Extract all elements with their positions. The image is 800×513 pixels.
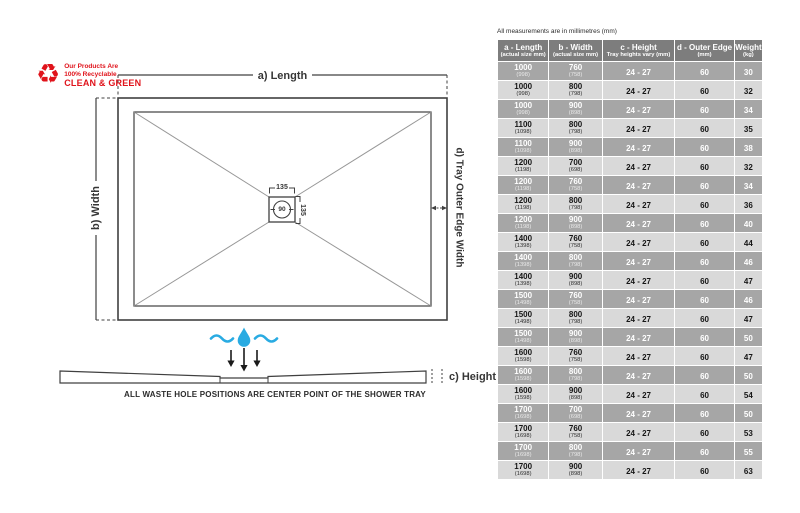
table-row: 1500(1498) 800(798) 24 - 27 60 47 bbox=[498, 309, 762, 327]
table-row: 1700(1698) 700(698) 24 - 27 60 50 bbox=[498, 404, 762, 422]
cell-height: 24 - 27 bbox=[603, 81, 675, 99]
height-dimension-label: c) Height bbox=[449, 371, 496, 383]
table-row: 1000(998) 900(898) 24 - 27 60 34 bbox=[498, 100, 762, 118]
cell-width: 760(758) bbox=[549, 347, 601, 365]
waste-hole-caption: ALL WASTE HOLE POSITIONS ARE CENTER POIN… bbox=[115, 390, 435, 399]
cell-outer-edge: 60 bbox=[675, 461, 733, 479]
cell-width: 760(758) bbox=[549, 423, 601, 441]
cell-height: 24 - 27 bbox=[603, 138, 675, 156]
cell-height: 24 - 27 bbox=[603, 366, 675, 384]
header-outer-edge: d - Outer Edge (mm) bbox=[675, 40, 733, 61]
cell-outer-edge: 60 bbox=[675, 271, 733, 289]
cell-height: 24 - 27 bbox=[603, 347, 675, 365]
cell-width: 800(798) bbox=[549, 442, 601, 460]
cell-length: 1100(1098) bbox=[498, 119, 548, 137]
cell-length: 1400(1398) bbox=[498, 233, 548, 251]
cell-height: 24 - 27 bbox=[603, 461, 675, 479]
cell-length: 1100(1098) bbox=[498, 138, 548, 156]
table-row: 1100(1098) 900(898) 24 - 27 60 38 bbox=[498, 138, 762, 156]
cell-weight: 30 bbox=[735, 62, 762, 80]
cell-height: 24 - 27 bbox=[603, 252, 675, 270]
recycle-icon: ♻ bbox=[36, 58, 60, 90]
table-row: 1000(998) 800(798) 24 - 27 60 32 bbox=[498, 81, 762, 99]
cell-height: 24 - 27 bbox=[603, 442, 675, 460]
cell-weight: 50 bbox=[735, 328, 762, 346]
cell-length: 1600(1598) bbox=[498, 366, 548, 384]
cell-outer-edge: 60 bbox=[675, 176, 733, 194]
cell-length: 1400(1398) bbox=[498, 252, 548, 270]
cell-weight: 36 bbox=[735, 195, 762, 213]
shower-tray-diagram: ♻ Our Products Are 100% Recyclable CLEAN… bbox=[0, 0, 497, 513]
header-weight: Weight (kg) bbox=[735, 40, 762, 61]
cell-length: 1400(1398) bbox=[498, 271, 548, 289]
table-row: 1700(1698) 900(898) 24 - 27 60 63 bbox=[498, 461, 762, 479]
width-dimension-label: b) Width bbox=[90, 168, 102, 248]
cell-weight: 40 bbox=[735, 214, 762, 232]
cell-length: 1600(1598) bbox=[498, 347, 548, 365]
cell-length: 1200(1198) bbox=[498, 214, 548, 232]
cell-width: 800(798) bbox=[549, 195, 601, 213]
waste-diameter-value: 90 bbox=[274, 206, 290, 214]
cell-height: 24 - 27 bbox=[603, 404, 675, 422]
cell-height: 24 - 27 bbox=[603, 309, 675, 327]
cell-outer-edge: 60 bbox=[675, 404, 733, 422]
table-row: 1200(1198) 900(898) 24 - 27 60 40 bbox=[498, 214, 762, 232]
cell-outer-edge: 60 bbox=[675, 62, 733, 80]
length-dimension-label: a) Length bbox=[118, 70, 447, 82]
measurements-note: All measurements are in millimetres (mm) bbox=[497, 28, 767, 36]
table-row: 1200(1198) 800(798) 24 - 27 60 36 bbox=[498, 195, 762, 213]
spec-sheet: ♻ Our Products Are 100% Recyclable CLEAN… bbox=[0, 0, 800, 513]
cell-outer-edge: 60 bbox=[675, 81, 733, 99]
cell-weight: 50 bbox=[735, 366, 762, 384]
cell-outer-edge: 60 bbox=[675, 214, 733, 232]
cell-weight: 32 bbox=[735, 157, 762, 175]
cell-height: 24 - 27 bbox=[603, 119, 675, 137]
cell-height: 24 - 27 bbox=[603, 328, 675, 346]
cell-length: 1700(1698) bbox=[498, 461, 548, 479]
cell-width: 760(758) bbox=[549, 62, 601, 80]
cell-outer-edge: 60 bbox=[675, 119, 733, 137]
cell-weight: 55 bbox=[735, 442, 762, 460]
table-row: 1400(1398) 900(898) 24 - 27 60 47 bbox=[498, 271, 762, 289]
table-row: 1100(1098) 800(798) 24 - 27 60 35 bbox=[498, 119, 762, 137]
cell-length: 1000(998) bbox=[498, 62, 548, 80]
table-row: 1400(1398) 760(758) 24 - 27 60 44 bbox=[498, 233, 762, 251]
cell-height: 24 - 27 bbox=[603, 176, 675, 194]
cell-weight: 50 bbox=[735, 404, 762, 422]
cell-length: 1700(1698) bbox=[498, 404, 548, 422]
cell-outer-edge: 60 bbox=[675, 309, 733, 327]
cell-height: 24 - 27 bbox=[603, 62, 675, 80]
cell-length: 1500(1498) bbox=[498, 290, 548, 308]
cell-outer-edge: 60 bbox=[675, 366, 733, 384]
cell-weight: 53 bbox=[735, 423, 762, 441]
cell-width: 760(758) bbox=[549, 290, 601, 308]
cell-weight: 47 bbox=[735, 271, 762, 289]
cell-outer-edge: 60 bbox=[675, 347, 733, 365]
table-row: 1700(1698) 800(798) 24 - 27 60 55 bbox=[498, 442, 762, 460]
cell-width: 760(758) bbox=[549, 176, 601, 194]
cell-height: 24 - 27 bbox=[603, 290, 675, 308]
cell-outer-edge: 60 bbox=[675, 138, 733, 156]
cell-length: 1000(998) bbox=[498, 100, 548, 118]
cell-weight: 34 bbox=[735, 100, 762, 118]
cell-weight: 54 bbox=[735, 385, 762, 403]
cell-weight: 63 bbox=[735, 461, 762, 479]
table-header-row: a - Length (actual size mm) b - Width (a… bbox=[498, 40, 762, 61]
cell-width: 900(898) bbox=[549, 214, 601, 232]
header-length: a - Length (actual size mm) bbox=[498, 40, 548, 61]
cell-height: 24 - 27 bbox=[603, 214, 675, 232]
table-row: 1500(1498) 760(758) 24 - 27 60 46 bbox=[498, 290, 762, 308]
table-row: 1200(1198) 760(758) 24 - 27 60 34 bbox=[498, 176, 762, 194]
cell-width: 900(898) bbox=[549, 100, 601, 118]
cell-height: 24 - 27 bbox=[603, 423, 675, 441]
flow-arrowhead-center bbox=[240, 365, 247, 372]
cell-length: 1700(1698) bbox=[498, 442, 548, 460]
wave-left-icon bbox=[211, 336, 233, 342]
header-height: c - Height Tray heights vary (mm) bbox=[603, 40, 675, 61]
cell-width: 800(798) bbox=[549, 309, 601, 327]
cell-height: 24 - 27 bbox=[603, 233, 675, 251]
cell-width: 800(798) bbox=[549, 81, 601, 99]
cell-length: 1200(1198) bbox=[498, 176, 548, 194]
cell-width: 800(798) bbox=[549, 119, 601, 137]
header-width: b - Width (actual size mm) bbox=[549, 40, 601, 61]
cell-weight: 44 bbox=[735, 233, 762, 251]
cell-outer-edge: 60 bbox=[675, 252, 733, 270]
cell-length: 1000(998) bbox=[498, 81, 548, 99]
cell-weight: 38 bbox=[735, 138, 762, 156]
cell-outer-edge: 60 bbox=[675, 290, 733, 308]
size-table: a - Length (actual size mm) b - Width (a… bbox=[497, 39, 763, 480]
cell-width: 700(698) bbox=[549, 157, 601, 175]
cell-height: 24 - 27 bbox=[603, 195, 675, 213]
cell-outer-edge: 60 bbox=[675, 195, 733, 213]
size-table-panel: All measurements are in millimetres (mm)… bbox=[497, 28, 767, 480]
outer-edge-dimension-label: d) Tray Outer Edge Width bbox=[454, 143, 465, 273]
cell-height: 24 - 27 bbox=[603, 157, 675, 175]
cell-outer-edge: 60 bbox=[675, 328, 733, 346]
cell-width: 800(798) bbox=[549, 252, 601, 270]
wave-right-icon bbox=[255, 336, 277, 342]
cell-weight: 35 bbox=[735, 119, 762, 137]
table-row: 1600(1598) 760(758) 24 - 27 60 47 bbox=[498, 347, 762, 365]
table-row: 1000(998) 760(758) 24 - 27 60 30 bbox=[498, 62, 762, 80]
cell-length: 1500(1498) bbox=[498, 328, 548, 346]
cell-width: 760(758) bbox=[549, 233, 601, 251]
table-row: 1200(1198) 700(698) 24 - 27 60 32 bbox=[498, 157, 762, 175]
cell-outer-edge: 60 bbox=[675, 157, 733, 175]
table-row: 1600(1598) 900(898) 24 - 27 60 54 bbox=[498, 385, 762, 403]
cell-length: 1700(1698) bbox=[498, 423, 548, 441]
cell-length: 1600(1598) bbox=[498, 385, 548, 403]
cell-weight: 32 bbox=[735, 81, 762, 99]
cell-outer-edge: 60 bbox=[675, 423, 733, 441]
tray-profile bbox=[60, 371, 426, 383]
cell-width: 800(798) bbox=[549, 366, 601, 384]
cell-length: 1200(1198) bbox=[498, 157, 548, 175]
cell-length: 1500(1498) bbox=[498, 309, 548, 327]
cell-length: 1200(1198) bbox=[498, 195, 548, 213]
cell-width: 900(898) bbox=[549, 271, 601, 289]
cell-outer-edge: 60 bbox=[675, 385, 733, 403]
cell-width: 900(898) bbox=[549, 328, 601, 346]
cell-weight: 47 bbox=[735, 347, 762, 365]
waste-width-value: 135 bbox=[270, 184, 294, 192]
table-row: 1500(1498) 900(898) 24 - 27 60 50 bbox=[498, 328, 762, 346]
cell-outer-edge: 60 bbox=[675, 442, 733, 460]
table-row: 1700(1698) 760(758) 24 - 27 60 53 bbox=[498, 423, 762, 441]
cell-height: 24 - 27 bbox=[603, 385, 675, 403]
table-row: 1600(1598) 800(798) 24 - 27 60 50 bbox=[498, 366, 762, 384]
waste-depth-value: 135 bbox=[298, 198, 306, 222]
cell-height: 24 - 27 bbox=[603, 271, 675, 289]
cell-height: 24 - 27 bbox=[603, 100, 675, 118]
cell-outer-edge: 60 bbox=[675, 233, 733, 251]
cell-width: 900(898) bbox=[549, 138, 601, 156]
cell-width: 900(898) bbox=[549, 385, 601, 403]
cell-weight: 46 bbox=[735, 252, 762, 270]
flow-arrowhead-left bbox=[227, 361, 234, 368]
water-drop-icon bbox=[238, 328, 251, 347]
cell-width: 700(698) bbox=[549, 404, 601, 422]
cell-outer-edge: 60 bbox=[675, 100, 733, 118]
flow-arrowhead-right bbox=[253, 361, 260, 368]
cell-weight: 34 bbox=[735, 176, 762, 194]
table-row: 1400(1398) 800(798) 24 - 27 60 46 bbox=[498, 252, 762, 270]
cell-width: 900(898) bbox=[549, 461, 601, 479]
cell-weight: 46 bbox=[735, 290, 762, 308]
cell-weight: 47 bbox=[735, 309, 762, 327]
